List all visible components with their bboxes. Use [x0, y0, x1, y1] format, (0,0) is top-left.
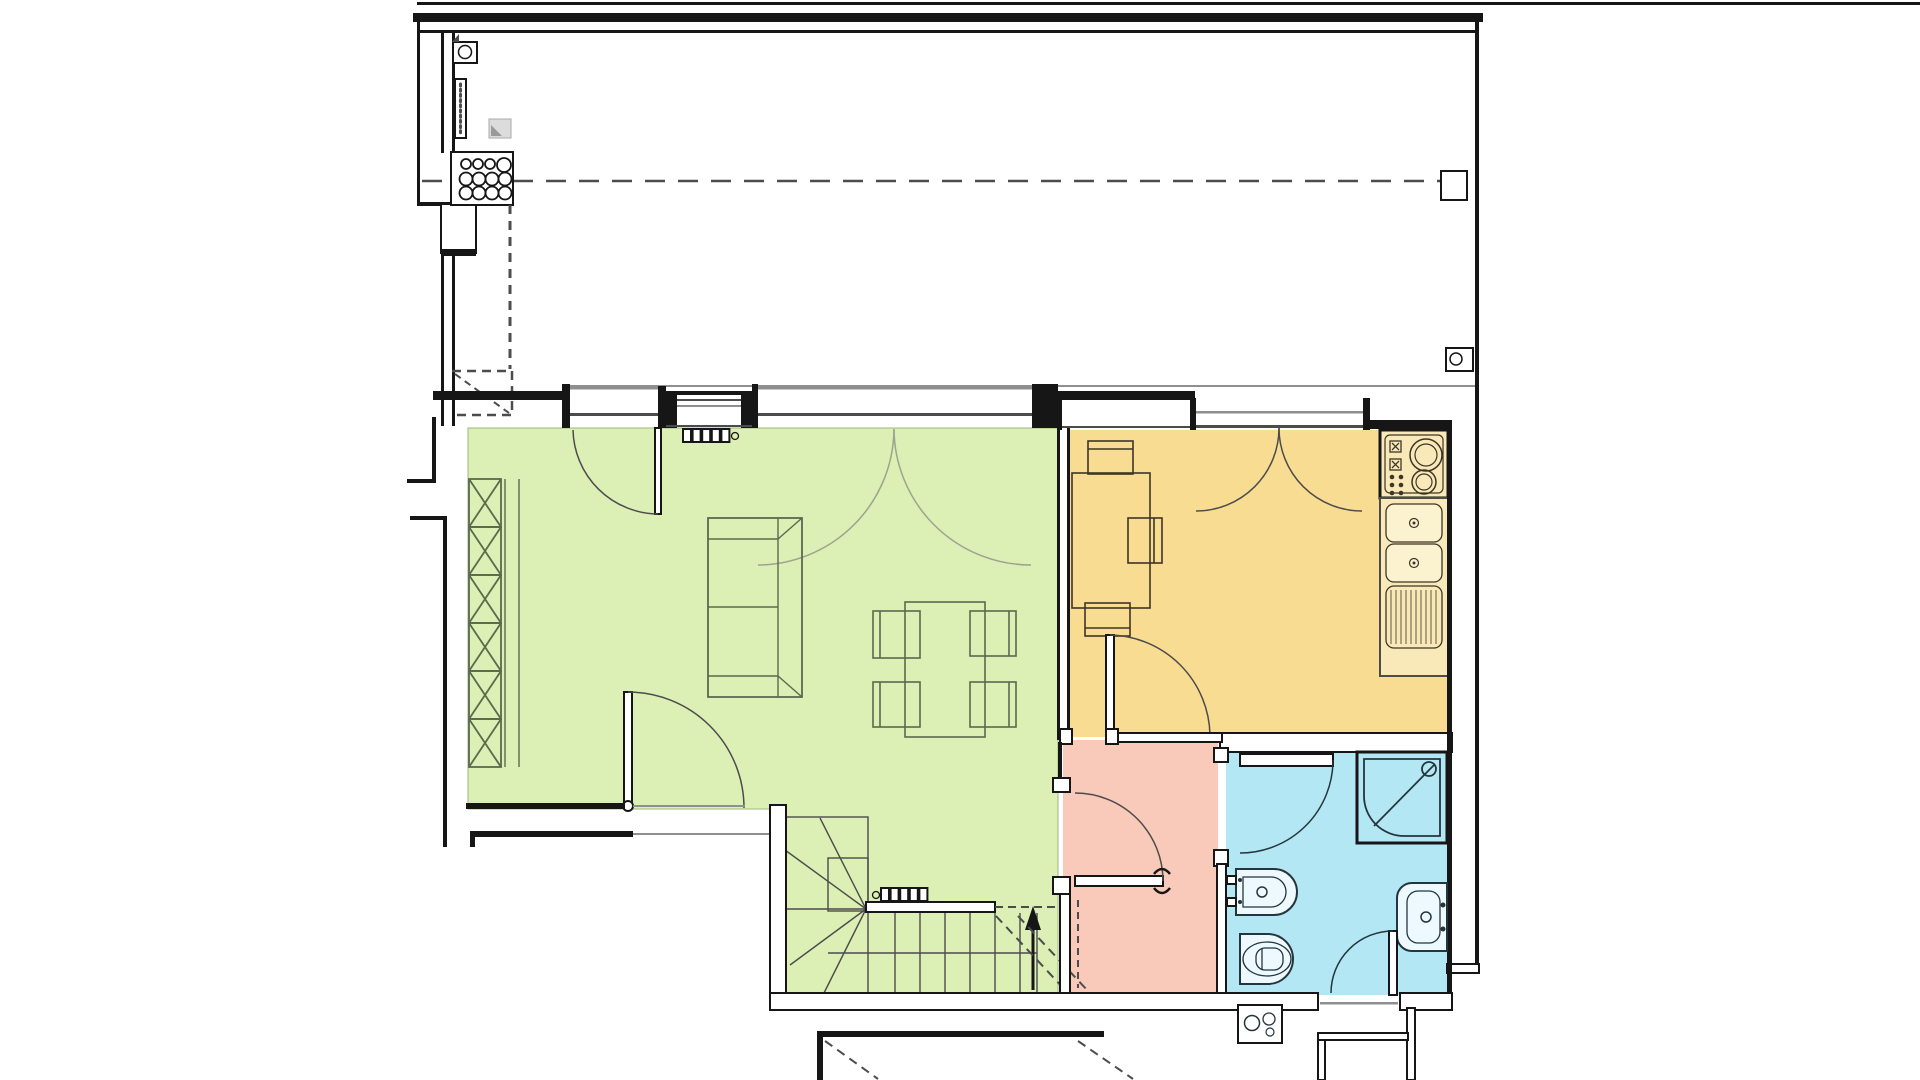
kitchen-hall-wall — [1118, 733, 1222, 742]
window-bay — [666, 391, 752, 428]
hall-stair-wall — [1060, 894, 1070, 995]
pad-marker — [489, 119, 511, 138]
garage-outline — [817, 1031, 1133, 1080]
wall-pier — [441, 204, 476, 253]
hall-bath-wall — [1217, 864, 1226, 995]
kitchen-bath-wall — [1220, 733, 1452, 752]
top-outer-thin-line — [417, 2, 1920, 5]
bottom-wall-left — [770, 993, 1318, 1010]
gas-meter-box — [452, 34, 477, 63]
stairs-left-wall — [770, 805, 786, 995]
skylight-circle-grid — [451, 152, 513, 205]
radiator — [683, 429, 739, 442]
stairs-radiator — [873, 888, 928, 901]
vent-strip — [455, 79, 466, 138]
right-wall-meter — [1446, 348, 1473, 371]
sink-counter — [1380, 498, 1448, 676]
hallway-floor — [1063, 740, 1218, 995]
cooktop — [1380, 430, 1448, 498]
living-bottom-wall — [466, 803, 625, 809]
top-wall-inner-line — [420, 30, 1477, 33]
bidet — [1227, 869, 1297, 915]
window-wall — [433, 384, 1475, 430]
washbasin — [1397, 883, 1447, 951]
toilet — [1240, 934, 1293, 984]
floor-plan — [0, 0, 1920, 1080]
window-jamb — [562, 384, 570, 428]
right-outer-wall — [1475, 22, 1479, 973]
entry-steps — [1318, 1008, 1415, 1080]
terrace — [422, 34, 1473, 415]
handrail — [866, 902, 995, 912]
top-wall-band — [413, 13, 1483, 22]
right-wall-box — [1441, 171, 1467, 200]
boiler-unit — [1238, 1005, 1282, 1043]
